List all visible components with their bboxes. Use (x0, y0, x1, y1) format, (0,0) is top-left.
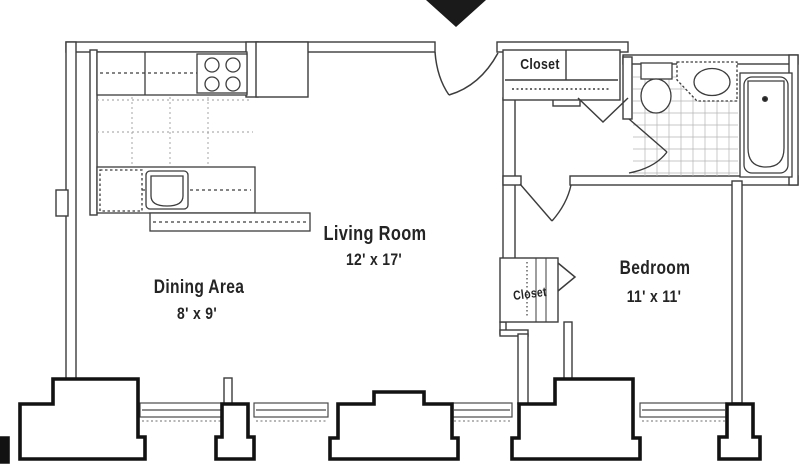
drain (763, 97, 768, 102)
room-dims-living: 12' x 17' (346, 250, 402, 270)
exterior-block (330, 392, 458, 459)
room-label-living: Living Room (324, 223, 427, 246)
room-label-dining: Dining Area (154, 277, 244, 299)
wall-closet-jog-d (564, 322, 572, 380)
closet-door-icon (558, 263, 575, 291)
hall-door-icon (578, 98, 628, 122)
wall-closet-jog-c (518, 334, 528, 404)
wall-window-stub (224, 378, 232, 406)
entry-arrow-icon (426, 0, 486, 27)
bathroom-door-swing-icon (629, 119, 667, 173)
wall-kitchen-left (90, 50, 97, 215)
window-icon (452, 403, 512, 421)
exterior-block (20, 379, 145, 459)
bathtub-icon (740, 73, 792, 177)
room-dims-dining: 8' x 9' (177, 304, 217, 324)
kitchen-tile-floor (97, 97, 253, 165)
wall-chase (256, 42, 308, 97)
window-icon (640, 403, 727, 421)
wall-bedroom-top-stub (503, 176, 521, 185)
exterior-wall-blocks (0, 379, 760, 462)
wall-left-bump (56, 190, 68, 216)
dishwasher-icon (100, 170, 142, 211)
entry-closet-label: Closet (520, 56, 560, 73)
exterior-block (512, 379, 640, 459)
floor-plan: Living Room 12' x 17' Dining Area 8' x 9… (0, 0, 800, 470)
wall-bedroom-right (732, 181, 742, 403)
bedroom-door-swing-icon (520, 184, 571, 221)
window-icon (254, 403, 328, 421)
toilet-icon (641, 63, 672, 113)
entry-door-swing-icon (435, 52, 498, 95)
room-dims-bedroom: 11' x 11' (627, 287, 682, 307)
exterior-corner (0, 438, 8, 462)
wall-bathroom-left (623, 57, 632, 119)
bathroom-sink-icon (677, 62, 737, 101)
window-icon (140, 403, 224, 421)
room-label-bedroom: Bedroom (620, 258, 691, 280)
exterior-pillar (216, 404, 254, 459)
bathroom (629, 62, 792, 177)
